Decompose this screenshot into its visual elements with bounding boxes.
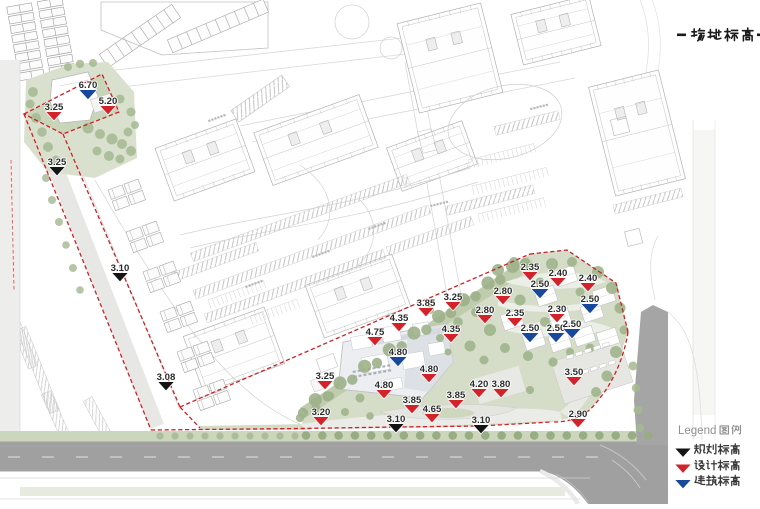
svg-text:Legend: Legend <box>678 425 716 437</box>
